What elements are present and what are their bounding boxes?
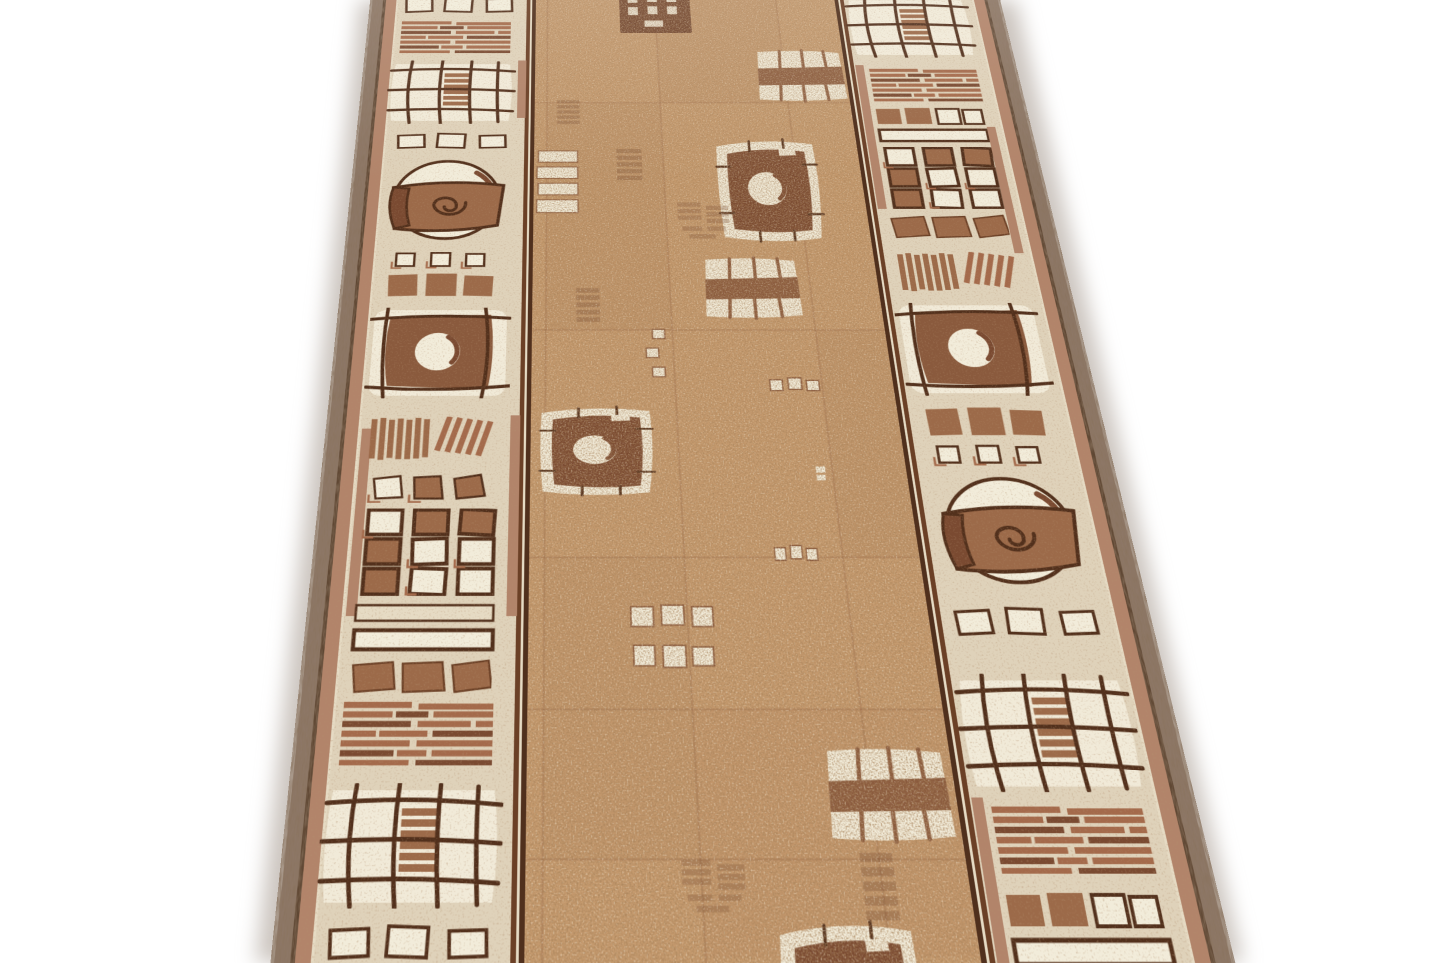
rug-artwork xyxy=(251,0,1281,963)
perspective-scene xyxy=(0,0,1445,963)
distance-haze xyxy=(251,0,1281,963)
photo-canvas xyxy=(0,0,1445,963)
runner-rug xyxy=(251,0,1281,963)
